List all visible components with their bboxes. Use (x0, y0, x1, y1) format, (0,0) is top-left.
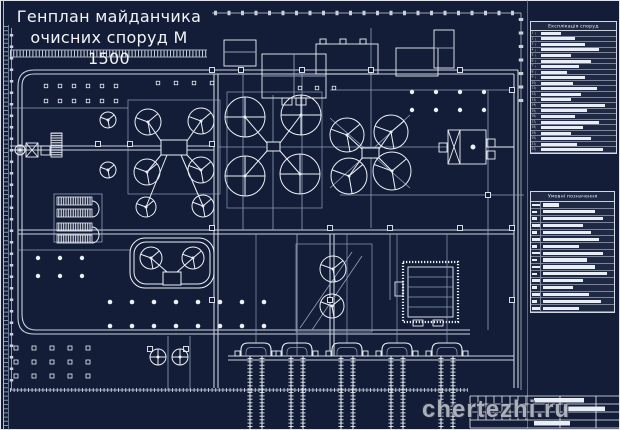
symbols-header-text: Умовні позначення (548, 194, 597, 199)
drawing-title: Генплан майданчика очисних споруд М 1500 (10, 6, 208, 69)
explication-rows: 1234567891011121314151617181920212223242… (531, 31, 616, 154)
legend-row (531, 202, 614, 209)
junction-nodes (96, 68, 515, 352)
explication-table: Експлікація споруд 123456789101112131415… (530, 21, 617, 154)
legend-row (531, 312, 614, 313)
legend-row (531, 285, 614, 292)
explication-header-text: Експлікація споруд (548, 23, 598, 28)
legend-row (531, 209, 614, 216)
legend-row (531, 292, 614, 299)
symbols-rows (531, 202, 614, 313)
legend-row (531, 271, 614, 278)
explication-header: Експлікація споруд (531, 22, 616, 31)
digester-pond (130, 238, 214, 288)
legend-row (531, 216, 614, 223)
legend-row (531, 278, 614, 285)
legend-row (531, 250, 614, 257)
legend-row (531, 298, 614, 305)
symbols-table: Умовні позначення (530, 191, 615, 313)
watermark: chertezhi.ru (422, 396, 620, 424)
legend-row (531, 305, 614, 312)
service-buildings (224, 30, 454, 105)
legend-row (531, 223, 614, 230)
legend-row: 23 (531, 153, 616, 154)
legend-row (531, 236, 614, 243)
legend-row (531, 243, 614, 250)
pump-station-right (439, 130, 514, 164)
cad-genplan-screenshot: { "colors":{"background":"#131d37","fram… (0, 0, 620, 430)
aeration-tanks (54, 194, 102, 243)
legend-row (531, 230, 614, 237)
symbols-header: Умовні позначення (531, 192, 614, 202)
pump-station-left (26, 133, 62, 157)
legend-row (531, 257, 614, 264)
legend-row (531, 264, 614, 271)
filter-building (395, 262, 458, 326)
drawing-title-line2: очисних споруд М 1500 (10, 27, 208, 69)
drawing-title-line1: Генплан майданчика (10, 6, 208, 27)
